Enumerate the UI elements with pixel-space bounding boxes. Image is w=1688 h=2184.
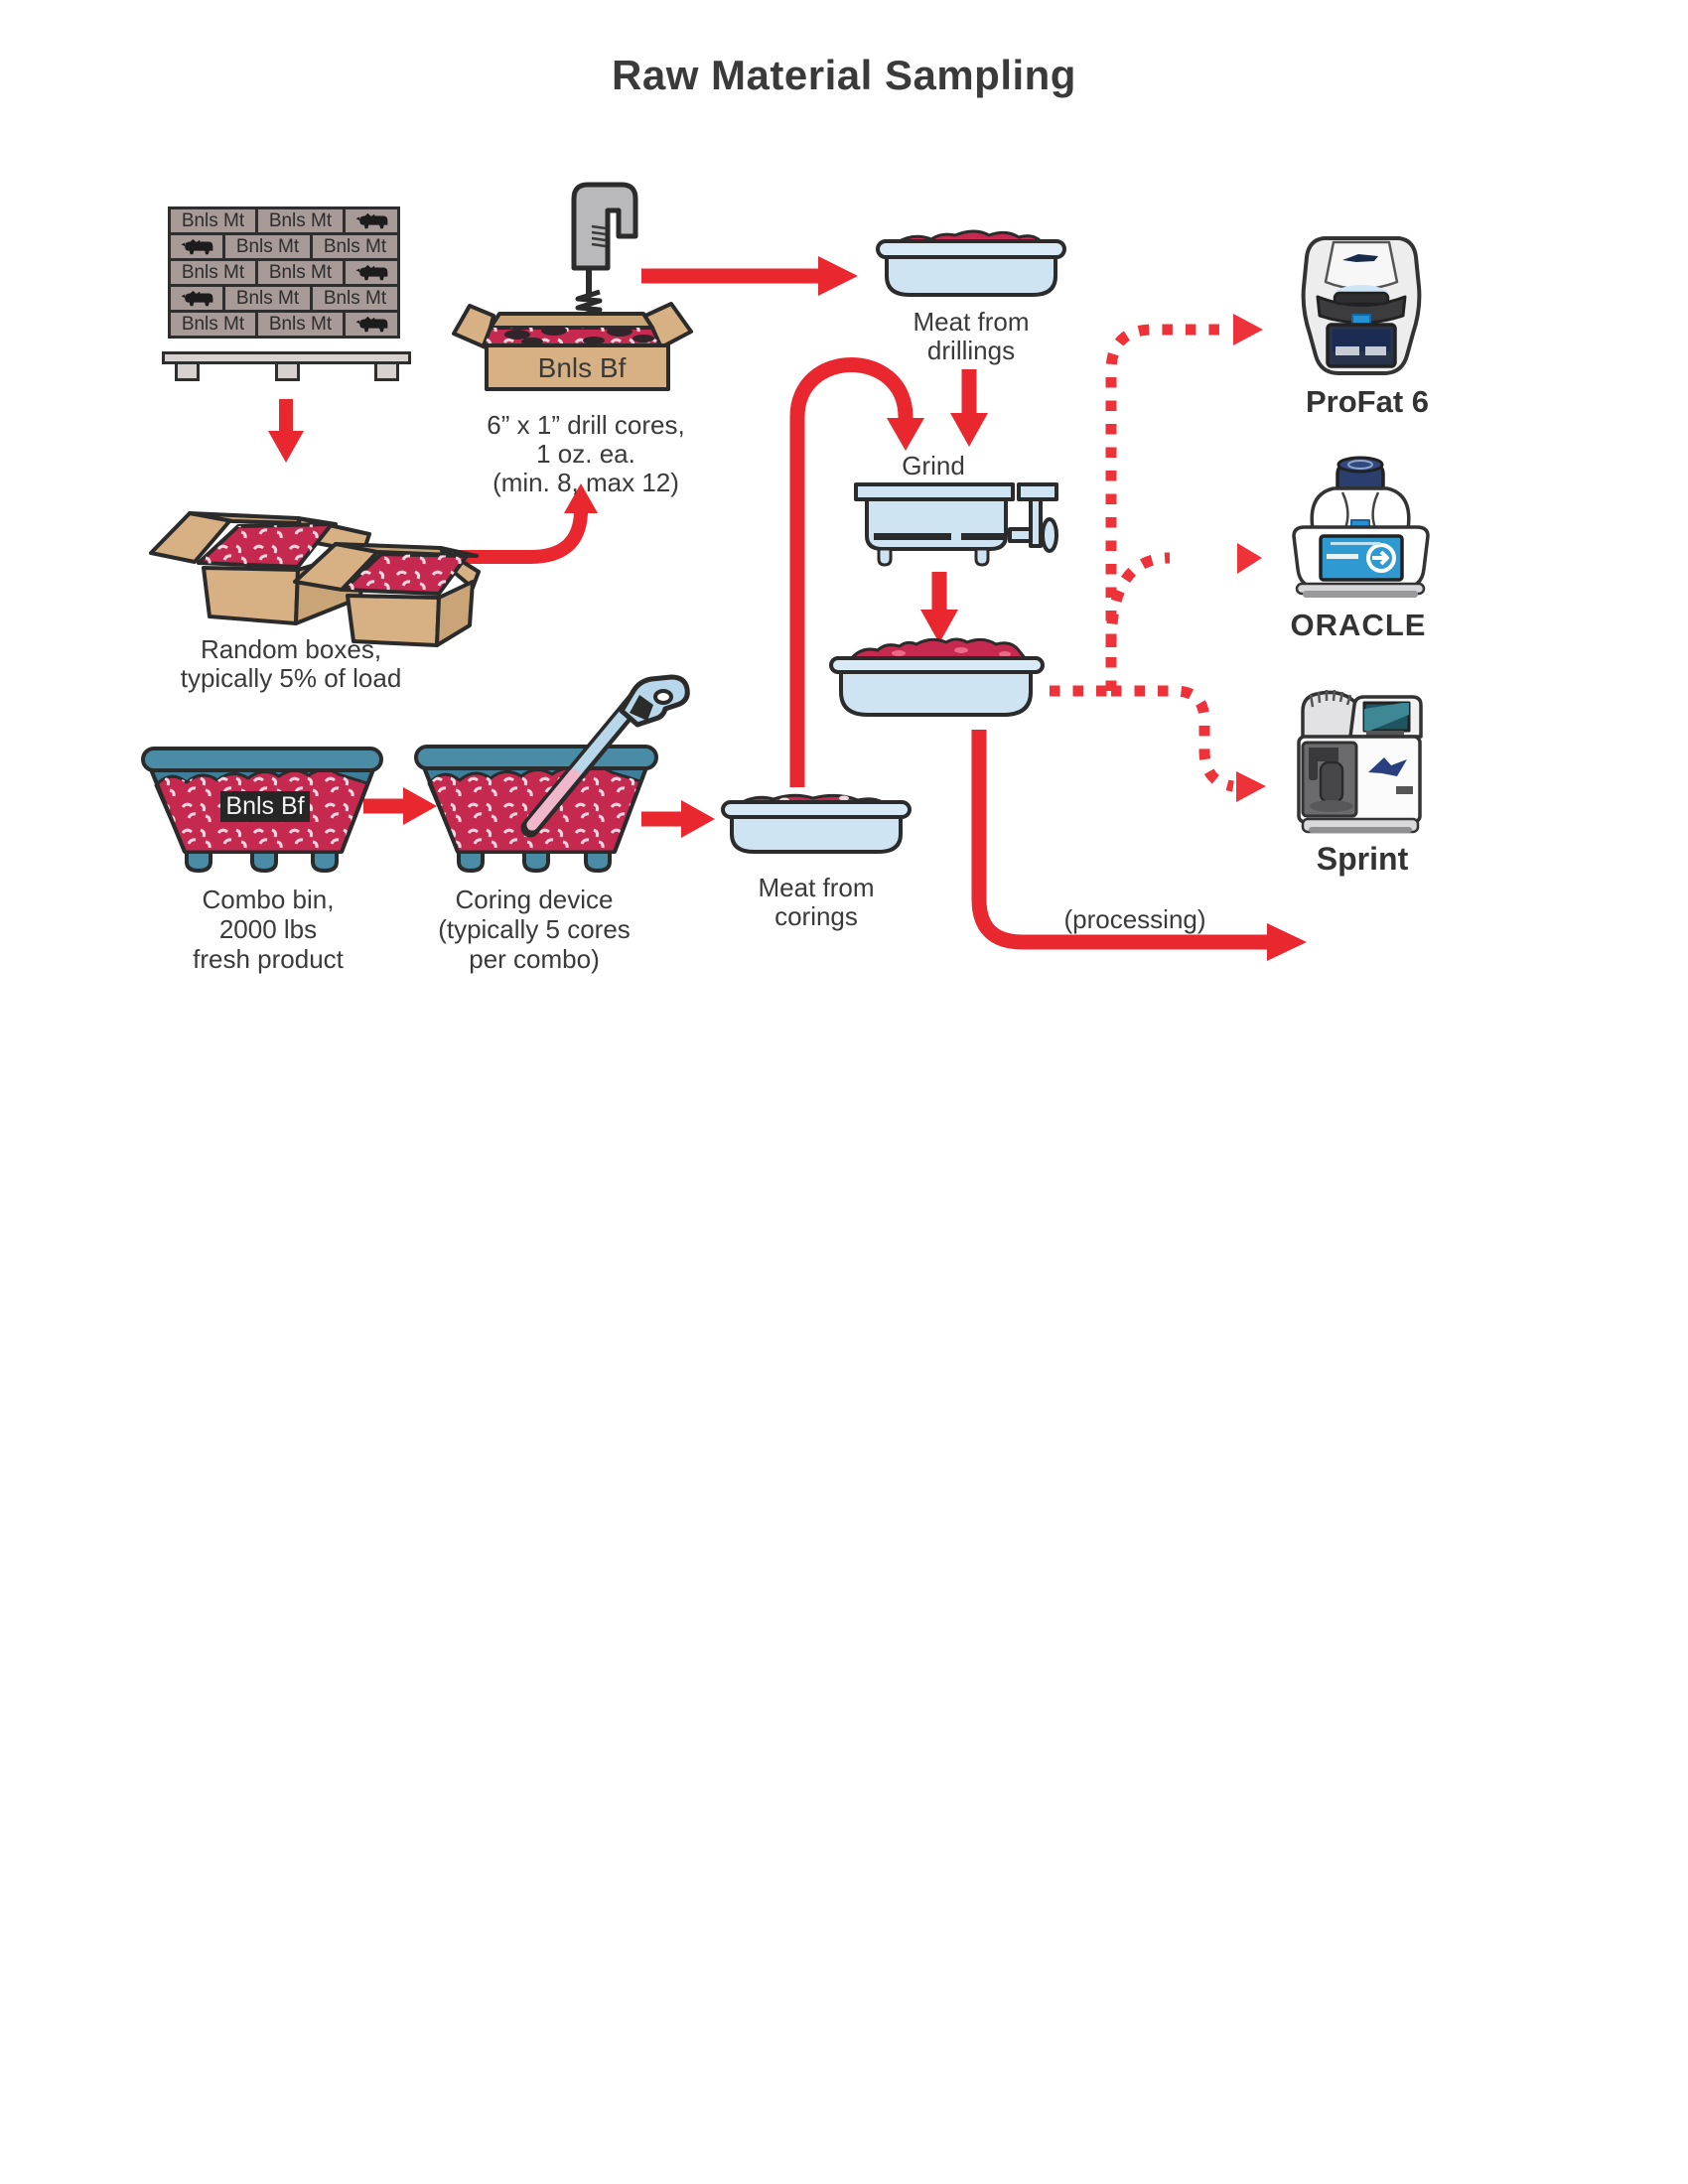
coring-device-caption: Coring device (typically 5 cores per com… (385, 885, 683, 974)
corings-tray-caption: Meat from corings (717, 874, 915, 931)
pallet-box-label: Bnls Mt (222, 284, 313, 313)
oracle-instrument-illustration (1294, 458, 1428, 598)
combo-bin-caption: Combo bin, 2000 lbs fresh product (119, 885, 417, 974)
profat-label: ProFat 6 (1268, 384, 1467, 420)
pallet-row: Bnls MtBnls Mt (168, 284, 403, 313)
pallet-box-label: Bnls Mt (168, 206, 258, 235)
arrow-drill-to-drillings-tray (641, 256, 858, 296)
diagram-page: Raw Material Sampling Bnls MtBnls Mt Bnl… (0, 0, 1688, 2184)
arrow-grinder-to-ground-tray (920, 572, 958, 643)
grinder-illustration (856, 484, 1056, 565)
arrow-coring-to-corings-tray (641, 800, 715, 838)
pallet-box-label: Bnls Mt (310, 284, 400, 313)
pallet-of-boxes: Bnls MtBnls Mt Bnls MtBnls MtBnls MtBnls… (168, 209, 403, 339)
pallet-box-icon (343, 310, 400, 339)
pallet-box-label: Bnls Mt (255, 206, 346, 235)
random-boxes-caption: Random boxes, typically 5% of load (142, 635, 440, 693)
random-boxes-illustration (151, 513, 479, 645)
arrow-combo-to-coring (363, 787, 437, 825)
page-title: Raw Material Sampling (0, 52, 1688, 99)
combo-bin-plate: Bnls Bf (220, 791, 310, 822)
pallet-foot (374, 361, 399, 381)
pallet-box-icon (168, 284, 225, 313)
dashed-path-to-oracle (1111, 543, 1262, 647)
pallet-foot (275, 361, 300, 381)
oracle-label: ORACLE (1259, 608, 1458, 643)
cattle-icon (178, 289, 215, 309)
pallet-box-label: Bnls Mt (168, 258, 258, 287)
ground-meat-tray-illustration (831, 639, 1043, 715)
arrow-pallet-to-boxes (268, 399, 304, 463)
pallet-box-label: Bnls Mt (168, 310, 258, 339)
cattle-icon (178, 237, 215, 257)
processing-label: (processing) (1036, 905, 1234, 934)
arrow-corings-to-grind (797, 365, 924, 788)
drillings-tray-caption: Meat from drillings (872, 308, 1070, 365)
pallet-box-icon (343, 206, 400, 235)
pallet-box-label: Bnls Mt (310, 232, 400, 261)
drill-cores-caption: 6” x 1” drill cores, 1 oz. ea. (min. 8, … (437, 411, 735, 497)
grind-label: Grind (834, 452, 1033, 480)
dashed-path-to-profat (1050, 314, 1263, 691)
sprint-label: Sprint (1263, 841, 1462, 878)
pallet-row: Bnls MtBnls Mt (168, 232, 403, 261)
cattle-icon (352, 211, 390, 231)
pallet-row: Bnls MtBnls Mt (168, 310, 403, 339)
profat-instrument-illustration (1304, 238, 1420, 373)
pallet-foot (175, 361, 200, 381)
arrow-drillings-to-grind (950, 369, 988, 447)
pallet-row: Bnls MtBnls Mt (168, 258, 403, 287)
pallet-box-label: Bnls Mt (255, 258, 346, 287)
dashed-path-to-sprint (1111, 691, 1266, 802)
corings-tray-illustration (723, 795, 910, 852)
cattle-icon (352, 315, 390, 335)
pallet-box-icon (168, 232, 225, 261)
sprint-instrument-illustration (1299, 690, 1421, 833)
pallet-box-icon (343, 258, 400, 287)
drill-box-label: Bnls Bf (483, 352, 681, 384)
pallet-box-label: Bnls Mt (222, 232, 313, 261)
pallet-box-label: Bnls Mt (255, 310, 346, 339)
drillings-tray-illustration (878, 231, 1064, 295)
cattle-icon (352, 263, 390, 283)
pallet-row: Bnls MtBnls Mt (168, 206, 403, 235)
